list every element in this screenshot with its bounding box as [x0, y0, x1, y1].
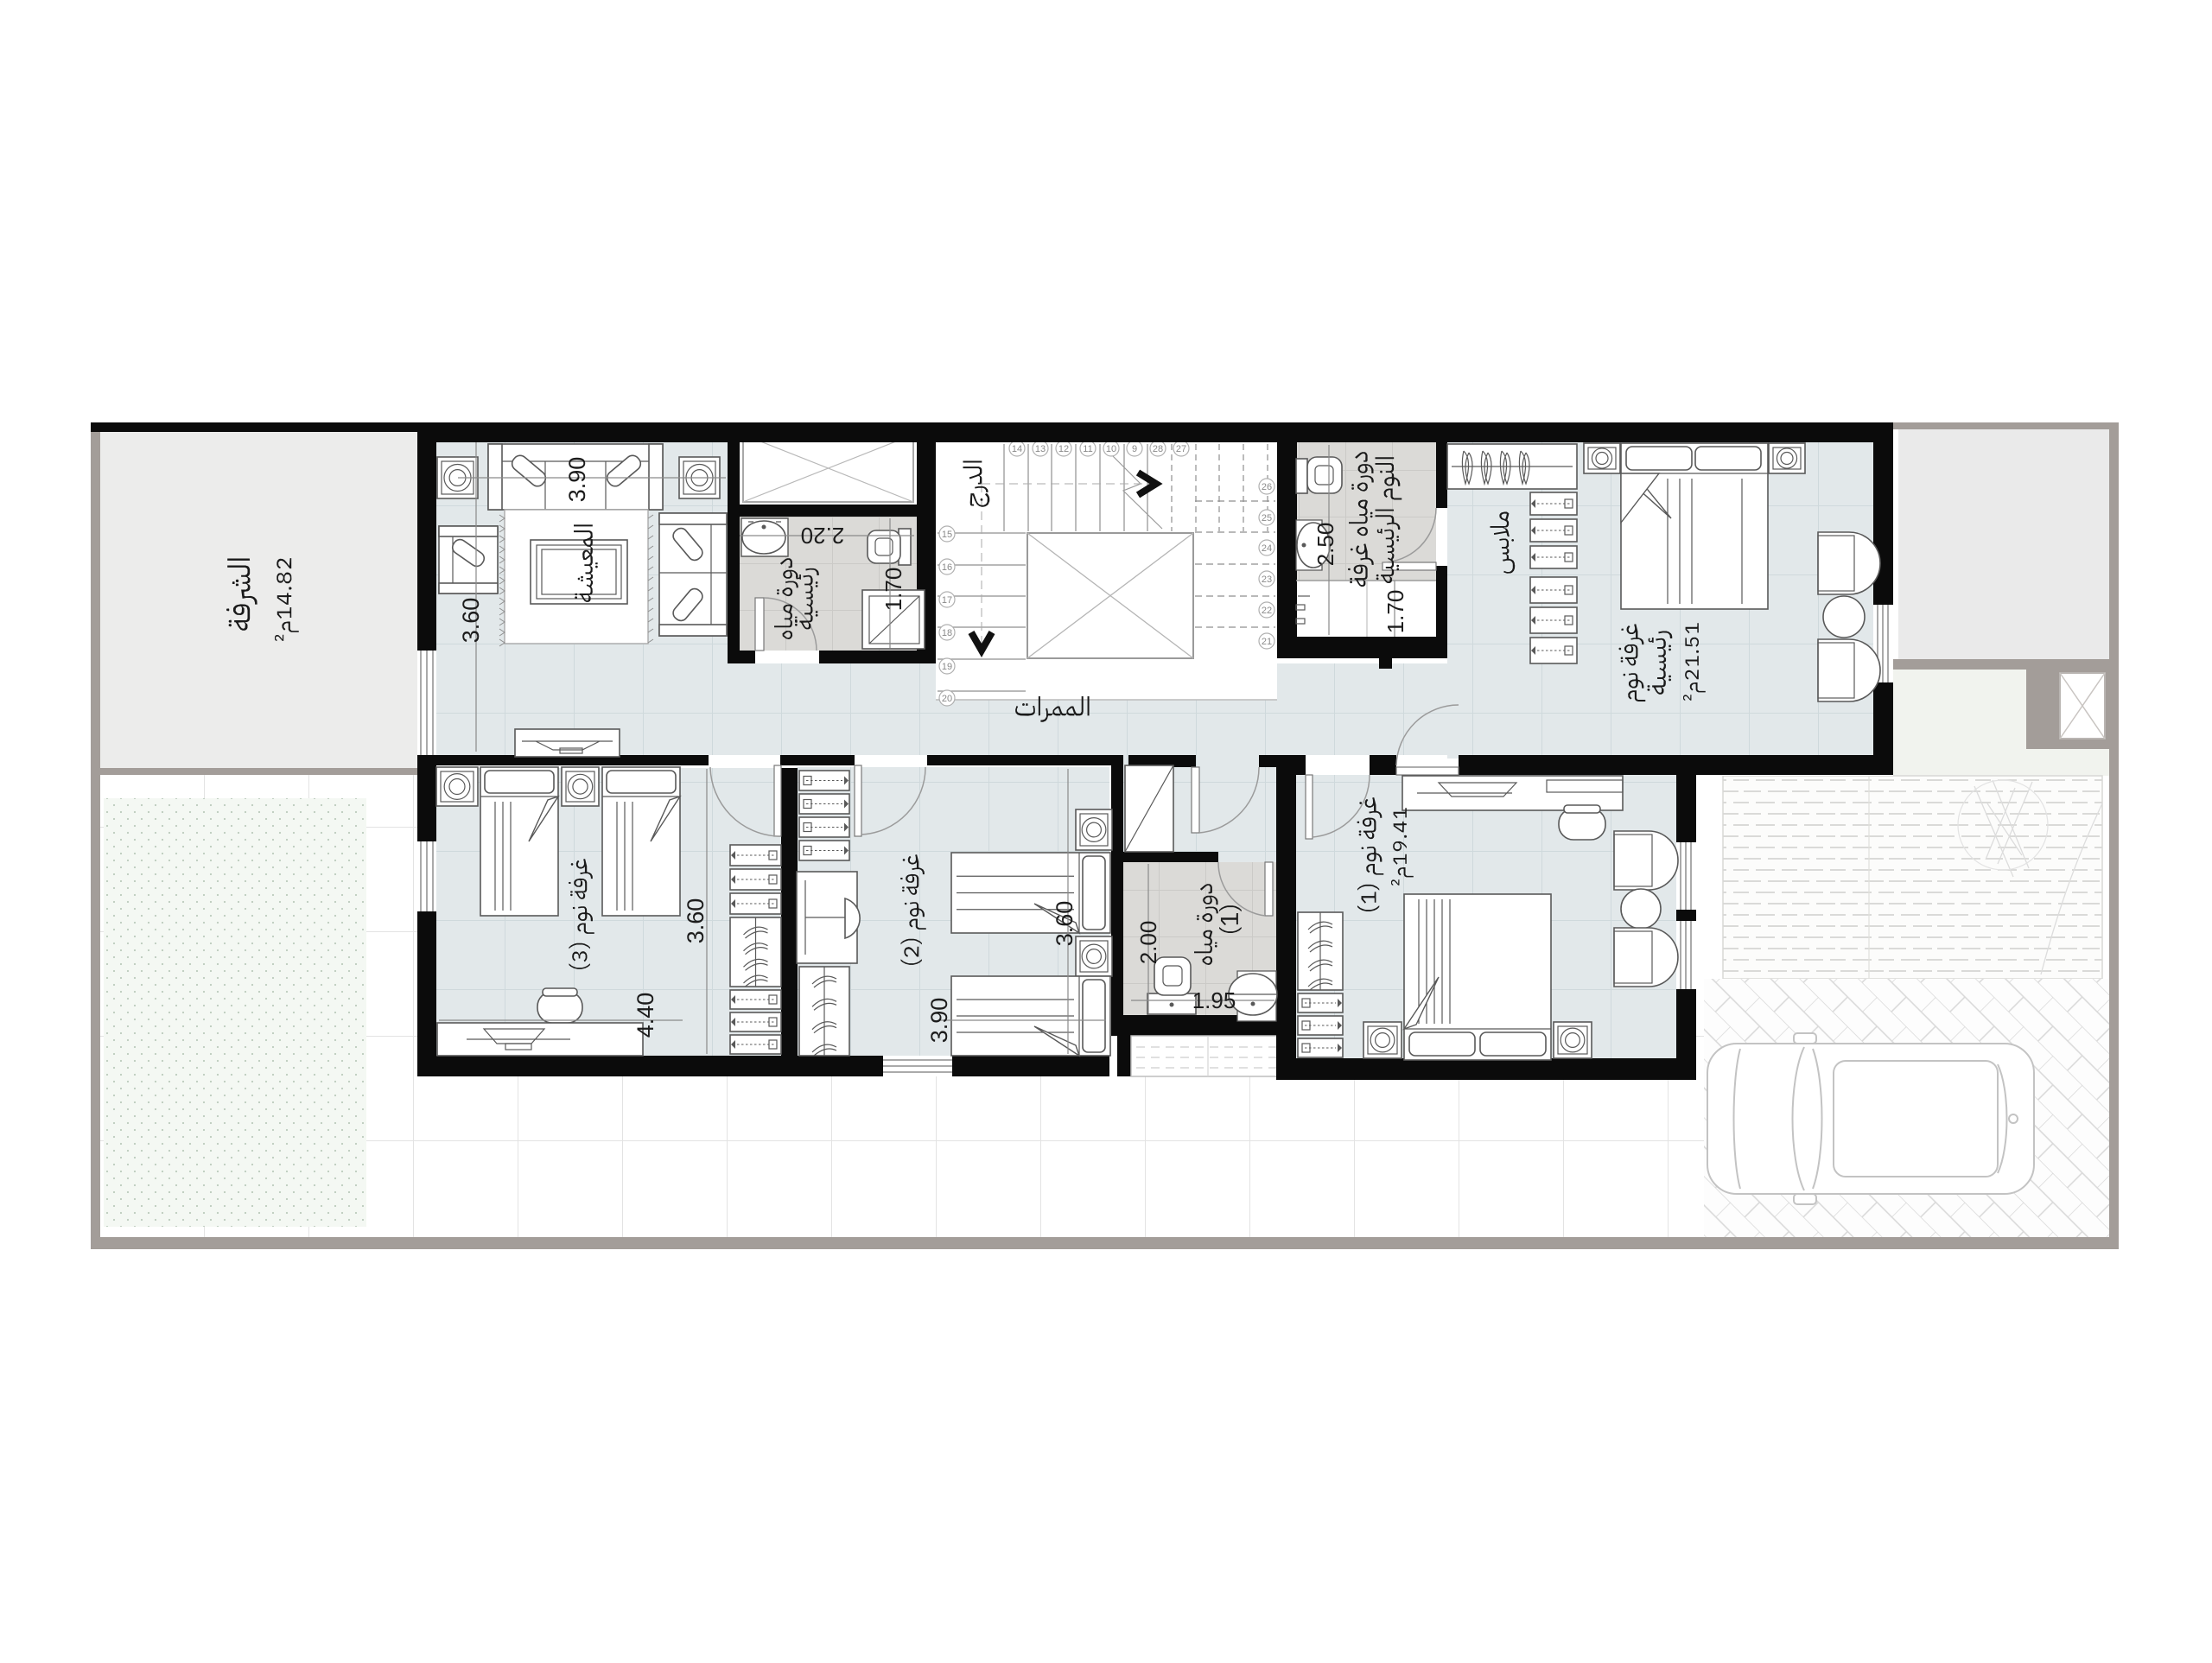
svg-text:19: 19	[942, 662, 952, 672]
svg-text:27: 27	[1176, 444, 1186, 454]
svg-text:3.90: 3.90	[926, 998, 952, 1044]
svg-text:9: 9	[1132, 444, 1137, 454]
svg-text:18: 18	[942, 628, 952, 638]
svg-text:12: 12	[1058, 444, 1069, 454]
svg-text:22: 22	[1262, 606, 1272, 616]
svg-text:15: 15	[942, 530, 952, 540]
svg-text:20: 20	[942, 694, 952, 704]
svg-text:3.60: 3.60	[683, 898, 709, 944]
svg-text:3.60: 3.60	[458, 598, 484, 644]
svg-text:11: 11	[1083, 444, 1092, 454]
svg-text:26: 26	[1262, 482, 1272, 492]
svg-text:14: 14	[1012, 444, 1022, 454]
svg-text:13: 13	[1035, 444, 1046, 454]
svg-text:1.70: 1.70	[880, 568, 906, 612]
svg-text:21: 21	[1262, 637, 1272, 647]
svg-text:2.20: 2.20	[801, 523, 845, 549]
svg-text:1.70: 1.70	[1382, 590, 1408, 634]
svg-text:17: 17	[942, 595, 952, 606]
svg-text:10: 10	[1106, 444, 1116, 454]
svg-text:24: 24	[1262, 543, 1272, 554]
svg-text:23: 23	[1262, 574, 1272, 585]
svg-text:16: 16	[942, 562, 952, 573]
svg-text:1.95: 1.95	[1192, 987, 1236, 1013]
svg-text:2.50: 2.50	[1313, 523, 1338, 567]
svg-text:4.40: 4.40	[632, 993, 658, 1038]
svg-text:2.00: 2.00	[1135, 921, 1161, 965]
svg-text:25: 25	[1262, 513, 1272, 524]
svg-text:3.90: 3.90	[564, 457, 590, 503]
svg-text:3.60: 3.60	[1052, 901, 1077, 947]
svg-text:28: 28	[1153, 444, 1163, 454]
